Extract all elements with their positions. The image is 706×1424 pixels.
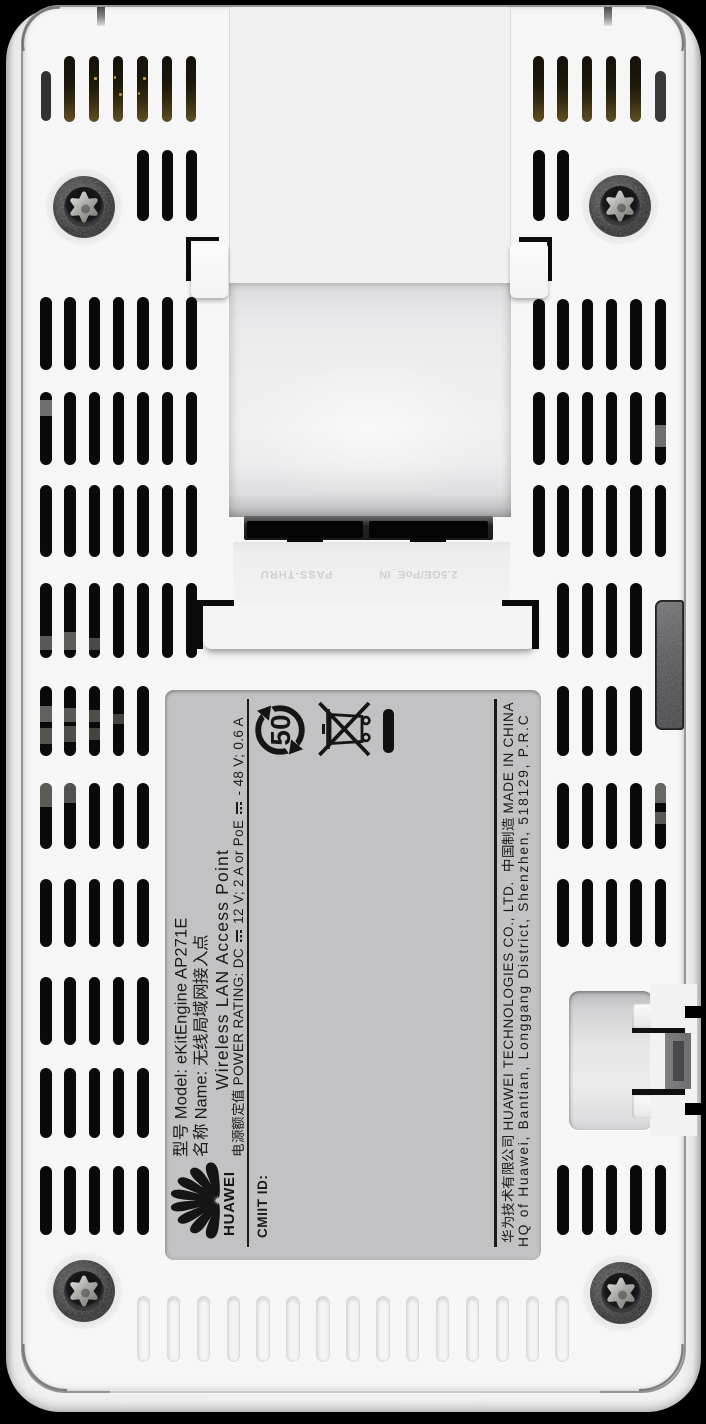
svg-text:50: 50: [265, 714, 296, 745]
